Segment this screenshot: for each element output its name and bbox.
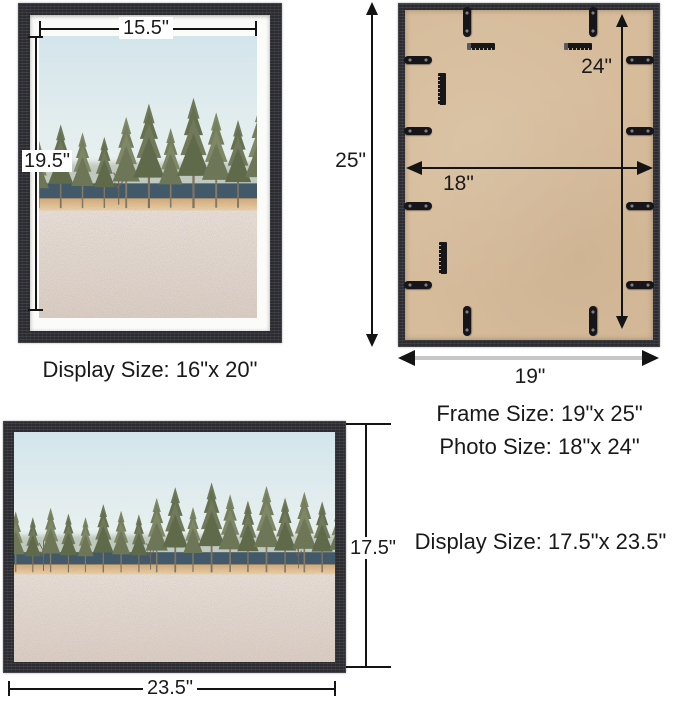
dim-tick [346, 423, 391, 425]
backing-board: 24" 18" [405, 10, 653, 340]
flip-tab [626, 56, 654, 64]
flip-tab [463, 306, 471, 336]
dim-line [404, 356, 655, 360]
flip-tab [626, 127, 654, 135]
arrowhead-left-icon [406, 161, 422, 175]
product-dimension-diagram: 15.5" 19.5" Display Size: 16"x 20" 25" [0, 0, 679, 705]
flip-tab [626, 202, 654, 210]
flip-tab [404, 127, 432, 135]
dim-line [371, 12, 373, 338]
frame-size-caption: Frame Size: 19"x 25" [400, 401, 679, 427]
dim-line [621, 22, 623, 322]
arrowhead-right-icon [642, 350, 659, 366]
dim-tick [28, 309, 43, 311]
dim-tick [346, 666, 391, 668]
flip-tab [404, 56, 432, 64]
dim-label-inner-height: 24" [566, 56, 612, 78]
sawtooth-hanger [439, 242, 447, 274]
dim-label-outer-width: 19" [478, 366, 582, 388]
dim-label-width: 23.5" [143, 677, 197, 699]
dim-label-outer-height: 25" [324, 150, 366, 172]
dim-tick [334, 681, 336, 696]
arrowhead-up-icon [366, 2, 378, 15]
photo-size-caption: Photo Size: 18"x 24" [400, 434, 679, 460]
dim-line [415, 167, 645, 169]
frame-back-view: 24" 18" [398, 3, 660, 347]
arrowhead-up-icon [616, 14, 628, 27]
sawtooth-hanger [564, 43, 592, 50]
dim-tick [39, 21, 41, 36]
sawtooth-hanger [438, 73, 446, 105]
dim-label-width: 15.5" [119, 17, 173, 39]
portrait-photo [39, 36, 257, 318]
dim-tick [255, 21, 257, 36]
dim-label-height: 17.5" [348, 537, 398, 559]
arrowhead-left-icon [398, 350, 415, 366]
flip-tab [404, 202, 432, 210]
landscape-photo [14, 432, 335, 662]
flip-tab [404, 281, 432, 289]
arrowhead-down-icon [616, 316, 628, 329]
sawtooth-hanger [467, 43, 495, 50]
landscape-frame-front [3, 421, 346, 673]
flip-tab [463, 7, 471, 37]
arrowhead-down-icon [366, 334, 378, 347]
flip-tab [589, 306, 597, 336]
arrowhead-right-icon [637, 161, 653, 175]
portrait-frame-front [18, 3, 282, 343]
flip-tab [589, 7, 597, 37]
landscape-display-size-caption: Display Size: 17.5"x 23.5" [402, 529, 679, 555]
dim-line [35, 36, 37, 311]
portrait-display-size-caption: Display Size: 16"x 20" [6, 357, 294, 383]
dim-tick [28, 36, 43, 38]
dim-tick [8, 681, 10, 696]
dim-label-height: 19.5" [22, 150, 72, 172]
portrait-frame-mat [30, 15, 270, 331]
dim-label-inner-width: 18" [443, 173, 474, 195]
flip-tab [626, 281, 654, 289]
